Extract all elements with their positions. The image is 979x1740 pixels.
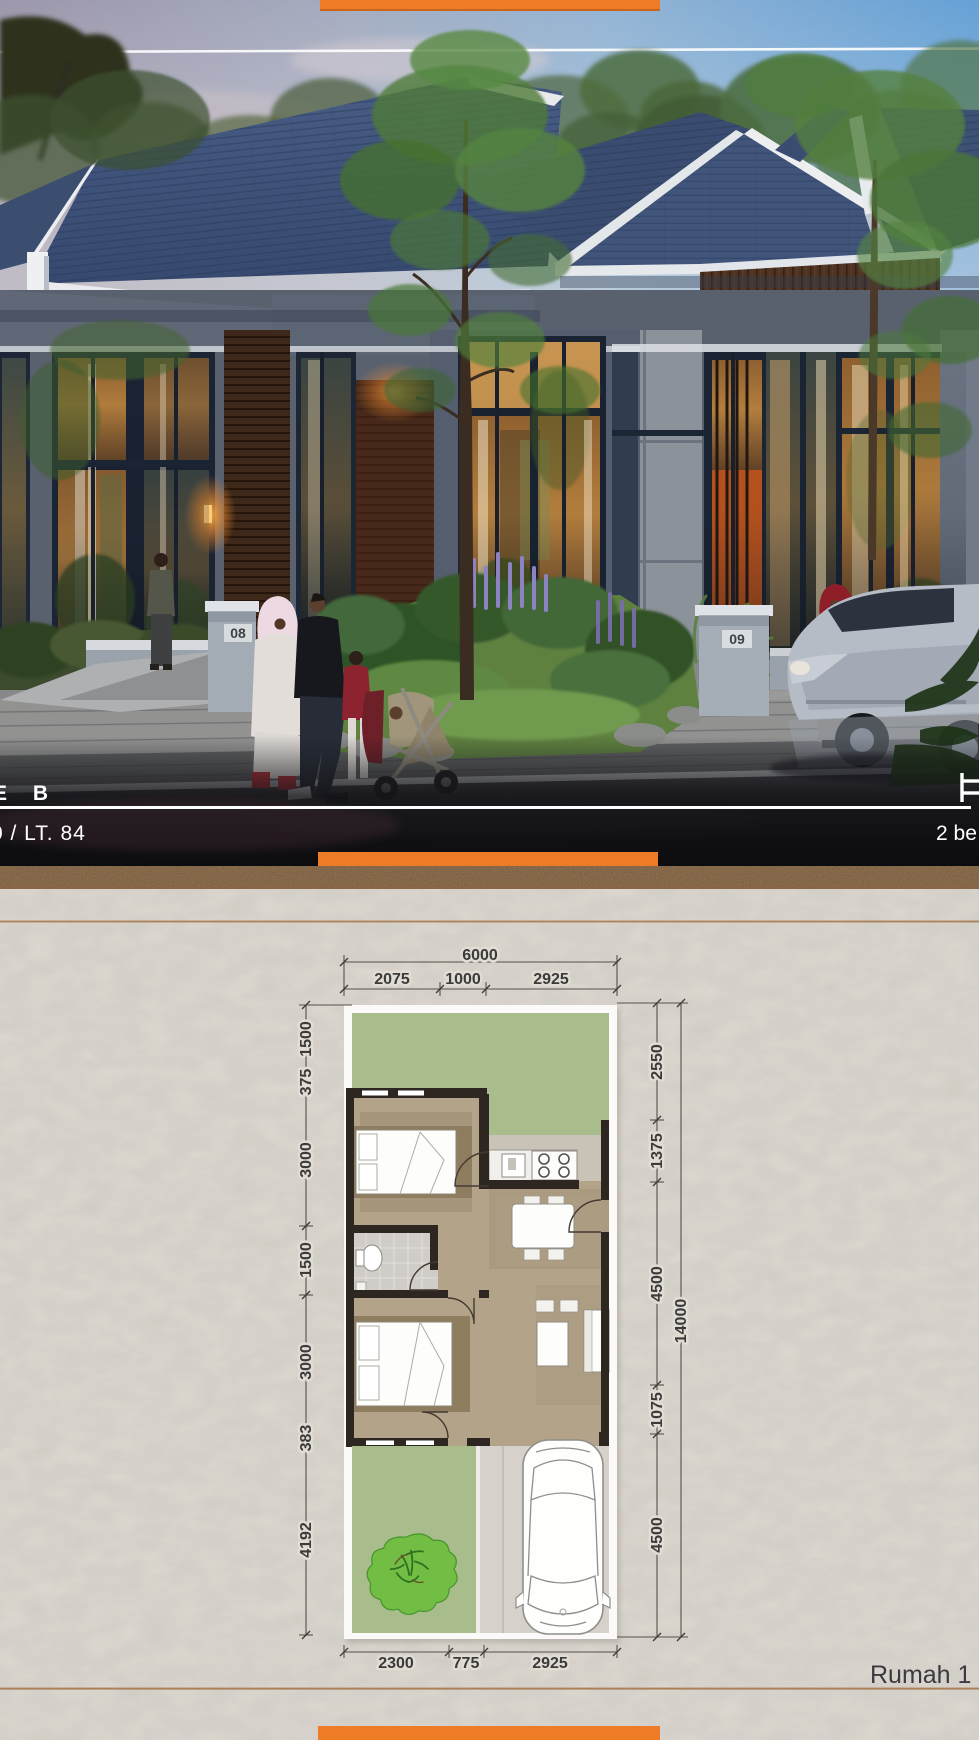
svg-text:2300: 2300	[378, 1655, 414, 1672]
svg-text:4500: 4500	[649, 1517, 666, 1553]
svg-text:1500: 1500	[298, 1021, 315, 1057]
svg-text:4192: 4192	[298, 1522, 315, 1558]
svg-text:E B: E B	[0, 782, 58, 805]
svg-text:2075: 2075	[374, 971, 410, 988]
svg-text:775: 775	[453, 1655, 480, 1672]
svg-text:2 be: 2 be	[936, 822, 977, 845]
svg-text:4500: 4500	[649, 1266, 666, 1302]
svg-text:1375: 1375	[649, 1133, 666, 1169]
svg-text:1500: 1500	[298, 1242, 315, 1278]
svg-text:2925: 2925	[532, 1655, 568, 1672]
svg-text:08: 08	[230, 625, 246, 641]
svg-text:6000: 6000	[462, 947, 498, 964]
svg-text:14000: 14000	[673, 1299, 690, 1344]
svg-text:1075: 1075	[649, 1392, 666, 1428]
svg-text:09: 09	[729, 631, 745, 647]
svg-text:1000: 1000	[445, 971, 481, 988]
svg-text:Rumah 1 L: Rumah 1 L	[870, 1661, 979, 1689]
svg-text:3000: 3000	[298, 1142, 315, 1178]
svg-text:2550: 2550	[649, 1044, 666, 1080]
svg-text:3000: 3000	[298, 1344, 315, 1380]
svg-text:2925: 2925	[533, 971, 569, 988]
svg-text:383: 383	[298, 1425, 315, 1452]
svg-text:0 / LT. 84: 0 / LT. 84	[0, 822, 86, 845]
svg-text:375: 375	[298, 1069, 315, 1096]
